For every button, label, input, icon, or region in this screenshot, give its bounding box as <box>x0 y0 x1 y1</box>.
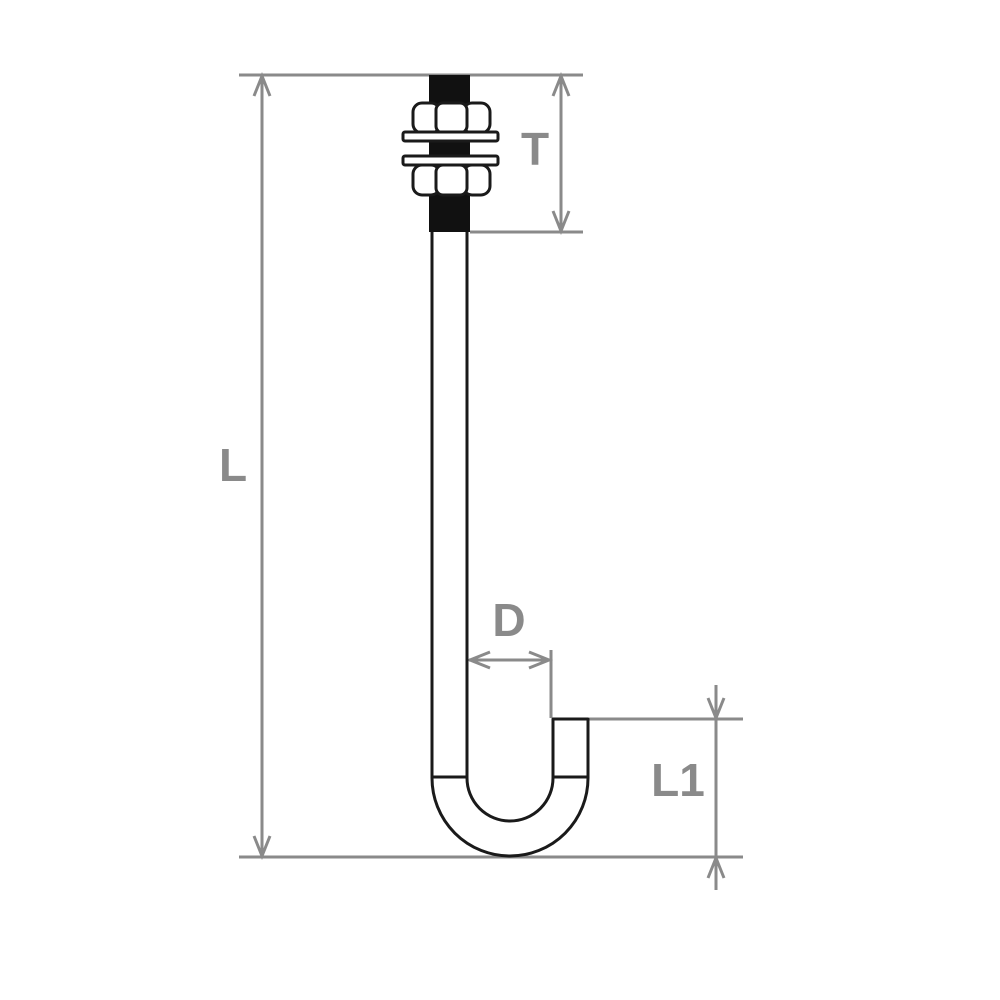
j-bolt-technical-drawing: L T D L1 <box>0 0 1000 1000</box>
dimension-L <box>254 75 270 857</box>
dimension-label-L: L <box>219 439 247 491</box>
hex-nut-upper <box>413 103 490 133</box>
technical-drawing-page: L T D L1 <box>0 0 1000 1000</box>
dimension-label-D: D <box>492 594 525 646</box>
hex-nut-center-facet <box>436 165 467 195</box>
dimension-D <box>469 650 551 718</box>
threaded-section <box>429 75 470 232</box>
washer-lower <box>403 156 498 165</box>
dimension-label-L1: L1 <box>651 754 705 806</box>
hex-nut-lower <box>413 165 490 195</box>
washer-upper <box>403 132 498 141</box>
hex-nut-center-facet <box>436 103 467 133</box>
shank-and-hook-outline <box>432 232 588 856</box>
dimension-label-T: T <box>521 123 549 175</box>
